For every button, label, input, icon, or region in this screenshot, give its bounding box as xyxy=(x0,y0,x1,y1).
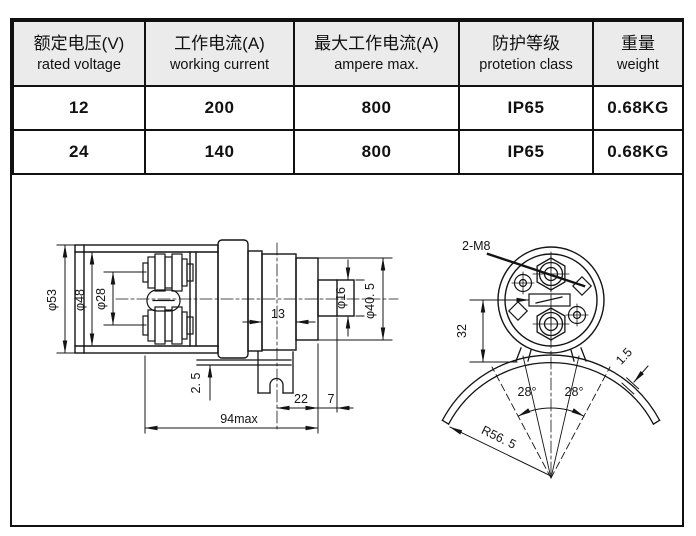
header-en: ampere max. xyxy=(295,56,458,75)
cell-voltage: 12 xyxy=(13,86,145,130)
dim-phi48-label: φ48 xyxy=(73,289,87,311)
dimension-13: 13 xyxy=(243,307,315,322)
key-slot xyxy=(529,294,570,306)
technical-drawings: φ53 φ48 φ28 13 xyxy=(12,176,682,525)
spec-table: 额定电压(V) rated voltage 工作电流(A) working cu… xyxy=(12,20,684,175)
dimension-phi53: φ53 xyxy=(45,245,75,353)
header-row: 额定电压(V) rated voltage 工作电流(A) working cu… xyxy=(13,21,683,86)
front-view-drawing: 28° 28° 32 2-M8 R56. xyxy=(442,239,659,478)
dimension-1-5: 1.5 xyxy=(613,345,648,394)
dim-32-label: 32 xyxy=(455,324,469,338)
dimension-phi16: φ16 xyxy=(334,260,364,336)
cell-ampere-max: 800 xyxy=(294,86,459,130)
header-zh: 重量 xyxy=(594,32,682,56)
col-header-weight: 重量 weight xyxy=(593,21,683,86)
dim-phi40-5-label: φ40. 5 xyxy=(363,283,377,319)
dimension-2-5: 2. 5 xyxy=(189,365,210,400)
cell-current: 200 xyxy=(145,86,294,130)
cell-voltage: 24 xyxy=(13,130,145,174)
header-zh: 最大工作电流(A) xyxy=(295,32,458,56)
table-row: 12 200 800 IP65 0.68KG xyxy=(13,86,683,130)
dim-28-left-label: 28° xyxy=(518,385,537,399)
dim-94max-label: 94max xyxy=(220,412,258,426)
terminal-bolt-top xyxy=(143,254,193,291)
col-header-working-current: 工作电流(A) working current xyxy=(145,21,294,86)
dimension-94max: 94max xyxy=(145,356,318,433)
dim-2m8-label: 2-M8 xyxy=(462,239,491,253)
table-row: 24 140 800 IP65 0.68KG xyxy=(13,130,683,174)
dim-r56-5-label: R56. 5 xyxy=(479,423,518,452)
dimension-phi48: φ48 xyxy=(73,252,92,346)
side-view-drawing: φ53 φ48 φ28 13 xyxy=(45,240,398,433)
cell-weight: 0.68KG xyxy=(593,130,683,174)
header-zh: 工作电流(A) xyxy=(146,32,293,56)
col-header-ampere-max: 最大工作电流(A) ampere max. xyxy=(294,21,459,86)
side-view-centerlines xyxy=(116,243,398,430)
cell-protection: IP65 xyxy=(459,86,593,130)
header-zh: 额定电压(V) xyxy=(14,32,144,56)
dim-1-5-label: 1.5 xyxy=(613,345,635,367)
index-square-lower-left xyxy=(509,302,527,320)
cell-ampere-max: 800 xyxy=(294,130,459,174)
dim-phi53-label: φ53 xyxy=(45,289,59,311)
datasheet-page: 额定电压(V) rated voltage 工作电流(A) working cu… xyxy=(0,0,696,536)
pilot-hole-left xyxy=(512,272,534,294)
header-zh: 防护等级 xyxy=(460,32,592,56)
dim-2-5-label: 2. 5 xyxy=(189,373,203,394)
dim-22-label: 22 xyxy=(294,392,308,406)
center-slot xyxy=(147,290,180,311)
page-frame: 额定电压(V) rated voltage 工作电流(A) working cu… xyxy=(10,18,684,527)
dim-phi16-label: φ16 xyxy=(334,287,348,309)
dimension-r56-5: R56. 5 xyxy=(450,423,551,476)
col-header-rated-voltage: 额定电压(V) rated voltage xyxy=(13,21,145,86)
header-en: working current xyxy=(146,56,293,75)
terminal-bolt-bottom xyxy=(143,307,193,344)
dim-28-right-label: 28° xyxy=(565,385,584,399)
cell-current: 140 xyxy=(145,130,294,174)
dimension-phi28: φ28 xyxy=(94,272,146,325)
header-en: protetion class xyxy=(460,56,592,75)
dim-7-label: 7 xyxy=(328,392,335,406)
dimension-22-7: 22 7 xyxy=(277,318,353,433)
header-en: rated voltage xyxy=(14,56,144,75)
cell-weight: 0.68KG xyxy=(593,86,683,130)
header-en: weight xyxy=(594,56,682,75)
m8-bolt-bottom xyxy=(533,306,569,342)
pilot-hole-right xyxy=(566,304,588,326)
col-header-protection-class: 防护等级 protetion class xyxy=(459,21,593,86)
dim-13-label: 13 xyxy=(271,307,285,321)
cell-protection: IP65 xyxy=(459,130,593,174)
dim-phi28-label: φ28 xyxy=(94,288,108,310)
